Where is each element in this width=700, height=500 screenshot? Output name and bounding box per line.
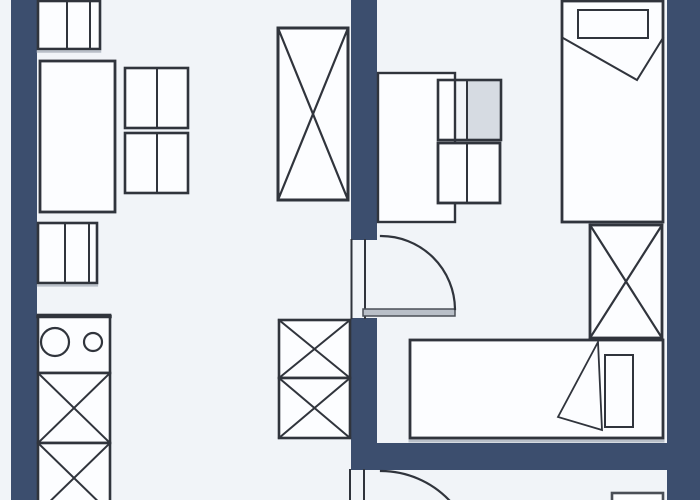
bottom-room-cabinet — [612, 493, 663, 500]
floorplan-svg — [0, 0, 700, 500]
sofa-table-large — [40, 61, 115, 212]
desk-chair-upper-shade — [467, 81, 500, 139]
door-1-swing-arc — [381, 236, 455, 309]
wall-middle-upper — [351, 0, 377, 240]
door-1-leaf — [363, 309, 455, 316]
bed-2-pillow — [605, 355, 633, 427]
wall-middle-lower — [351, 318, 377, 445]
desk-chair-lower — [438, 143, 500, 203]
floorplan — [0, 0, 700, 500]
wall-left — [11, 0, 37, 500]
wall-bottom — [351, 443, 700, 470]
door-2-swing-arc — [381, 471, 449, 500]
sink-counter — [38, 315, 110, 373]
bed-1-pillow — [578, 10, 648, 38]
wall-right — [667, 0, 700, 500]
kitchen-unit-x2 — [38, 443, 110, 500]
